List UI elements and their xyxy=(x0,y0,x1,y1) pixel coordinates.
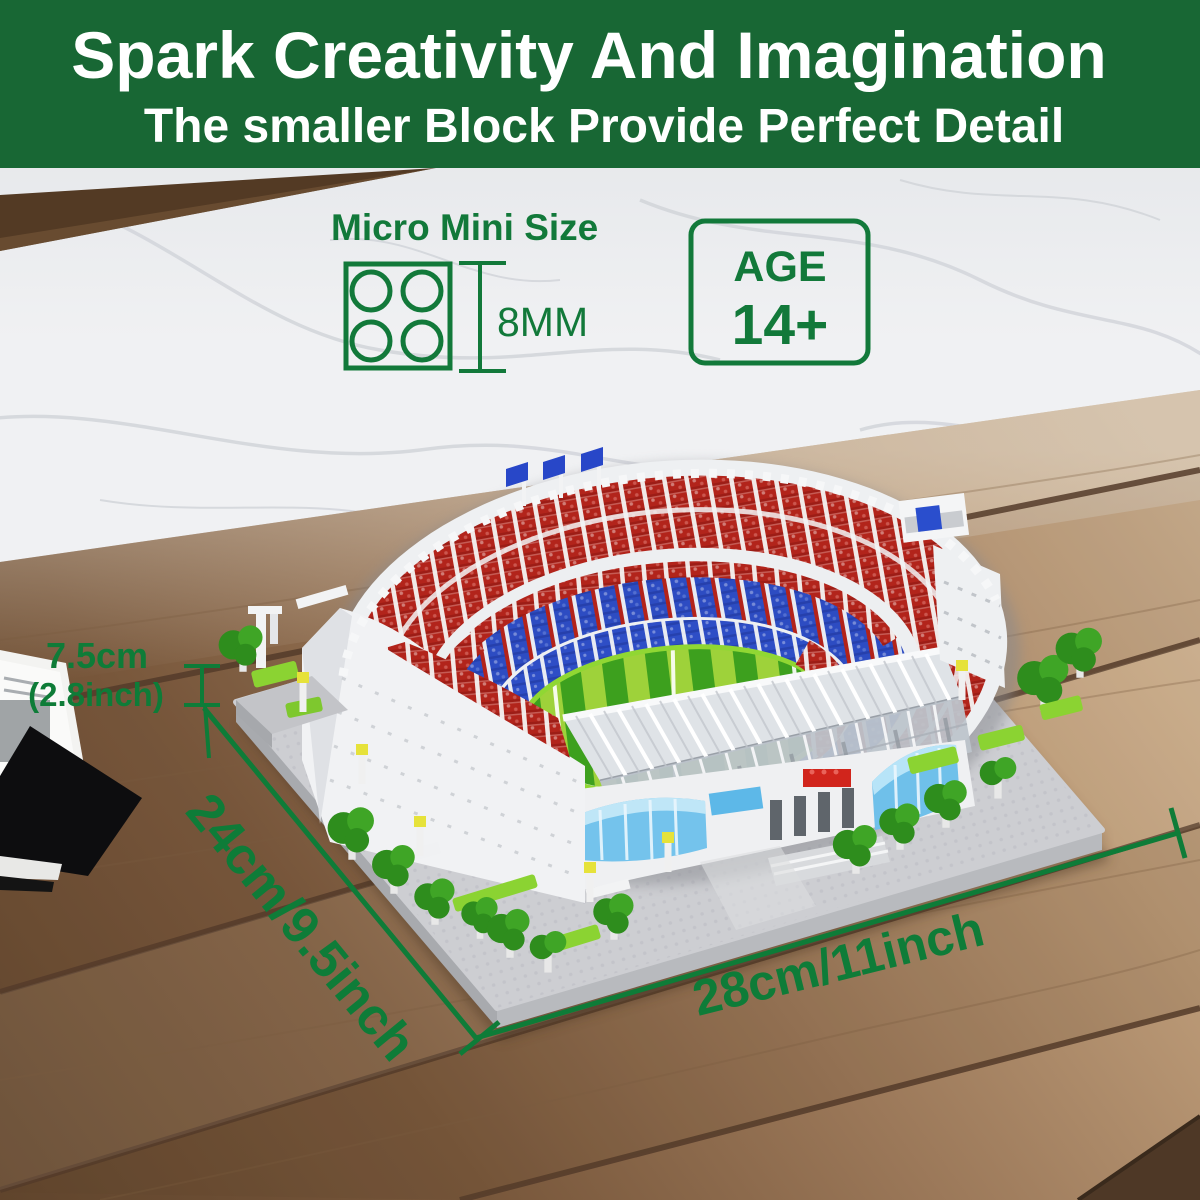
svg-text:Spark Creativity And Imaginati: Spark Creativity And Imagination xyxy=(71,18,1106,92)
svg-text:7.5cm: 7.5cm xyxy=(46,635,148,676)
svg-text:8MM: 8MM xyxy=(497,299,588,345)
svg-text:14+: 14+ xyxy=(732,293,829,357)
svg-text:The smaller Block Provide Perf: The smaller Block Provide Perfect Detail xyxy=(144,100,1064,153)
svg-text:Micro Mini Size: Micro Mini Size xyxy=(331,207,598,248)
svg-text:(2.8inch): (2.8inch) xyxy=(28,676,164,713)
svg-text:AGE: AGE xyxy=(733,243,826,291)
